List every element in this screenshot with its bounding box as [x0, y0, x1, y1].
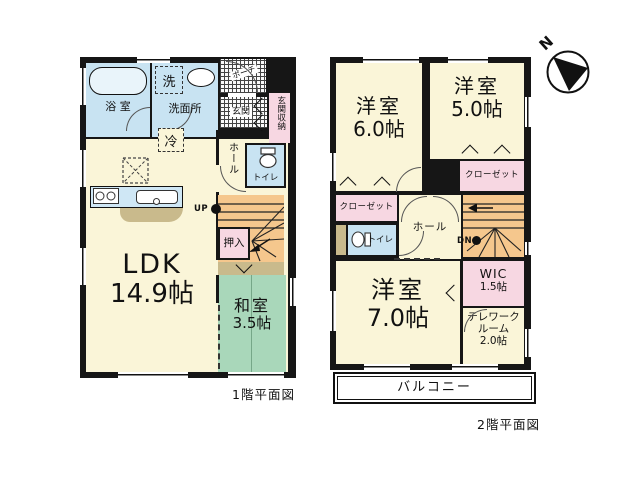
yoshitsu5-size: 5.0帖	[451, 98, 503, 121]
window	[118, 372, 188, 378]
telework-size: 2.0帖	[480, 335, 507, 347]
wic-name: WIC	[480, 267, 508, 281]
room-wic: WIC 1.5帖	[463, 261, 524, 306]
door-swing-icon	[462, 145, 479, 162]
window	[363, 57, 419, 63]
closet-floor-strip	[218, 262, 284, 275]
toilet2-label: トイレ	[367, 236, 393, 246]
washitsu-name: 和室	[234, 297, 270, 315]
yoshitsu7-size: 7.0帖	[367, 305, 429, 333]
closet-right-label: クローゼット	[465, 171, 519, 181]
room-yoshitsu7: 洋室 7.0帖	[336, 261, 460, 364]
wall	[86, 137, 218, 139]
room-hall2: ホール	[399, 195, 461, 259]
window	[80, 248, 86, 285]
door-arc	[396, 167, 421, 192]
window	[330, 291, 336, 331]
floor2-caption: 2階平面図	[466, 414, 540, 433]
washitsu-label: 和室 3.5帖	[218, 297, 286, 333]
toilet1-label: トイレ	[247, 174, 284, 184]
fridge-icon: 冷	[158, 128, 184, 152]
window	[80, 150, 86, 187]
room-washroom: 洗 洗面所	[152, 63, 218, 137]
window	[137, 57, 170, 63]
window	[228, 372, 284, 378]
floor1-caption: 1階平面図	[225, 384, 295, 403]
room-telework: テレワーク ルーム 2.0帖	[463, 308, 524, 364]
room-bath: 浴 室	[86, 63, 150, 137]
table-icon	[122, 157, 149, 184]
yoshitsu5-name: 洋室	[454, 75, 500, 98]
washbasin-icon	[187, 68, 215, 87]
yoshitsu6-name: 洋室	[356, 95, 402, 118]
oshiire-label: 押入	[224, 237, 245, 249]
floorplan-canvas: 浴 室 洗 洗面所 ポーチ 玄関 玄関収納 ホール	[0, 0, 635, 480]
wall	[220, 128, 269, 130]
room-yoshitsu6: 洋室 6.0帖	[336, 63, 422, 191]
toilet-counter	[336, 225, 346, 255]
closet-left-label: クローゼット	[339, 203, 393, 213]
door-arc	[399, 231, 424, 256]
window	[290, 278, 296, 306]
genkan-label: 玄関	[230, 107, 252, 117]
yoshitsu7-name: 洋室	[371, 277, 425, 305]
washing-machine-icon: 洗	[155, 66, 183, 94]
stairs-up-dot	[211, 204, 221, 214]
door-swing-icon	[374, 177, 391, 194]
compass-icon: N	[532, 26, 606, 100]
window	[452, 364, 498, 370]
window	[448, 57, 488, 63]
room-toilet-2f: トイレ	[348, 225, 396, 255]
stairs-arrow	[249, 244, 260, 252]
bathtub-icon	[89, 67, 147, 95]
room-yoshitsu5: 洋室 5.0帖	[430, 63, 524, 159]
ldk-size: 14.9帖	[110, 280, 194, 310]
wall	[216, 130, 219, 165]
ldk-name: LDK	[122, 249, 182, 280]
window	[525, 242, 531, 255]
stairs-up-label: UP	[194, 204, 208, 214]
sliding-door-dashed	[394, 258, 440, 260]
compass-north-label: N	[536, 32, 557, 54]
floor1-building: 浴 室 洗 洗面所 ポーチ 玄関 玄関収納 ホール	[80, 57, 296, 378]
stairs-down-label: DN	[457, 236, 472, 246]
kitchen-counter	[90, 186, 183, 208]
stairs-2f	[463, 195, 524, 257]
balcony: バルコニー	[333, 372, 536, 404]
floor2-building: 洋室 6.0帖 洋室 5.0帖 クローゼット クローゼット	[330, 57, 531, 370]
door-swing-icon	[340, 177, 357, 194]
kitchen-counter-base	[120, 208, 183, 222]
yoshitsu5-label: 洋室 5.0帖	[430, 75, 524, 121]
window	[525, 97, 531, 127]
door-arc	[401, 196, 427, 222]
genkan-storage-label: 玄関収納	[275, 96, 285, 130]
room-bath-label: 浴 室	[86, 101, 150, 114]
yoshitsu7-label: 洋室 7.0帖	[336, 277, 460, 332]
wic-size: 1.5帖	[480, 281, 507, 293]
balcony-label: バルコニー	[397, 381, 472, 396]
ldk-label: LDK 14.9帖	[88, 249, 216, 310]
genkan-storage: 玄関収納	[269, 93, 290, 143]
closet-left: クローゼット	[336, 195, 397, 221]
room-toilet-1f: トイレ	[245, 143, 286, 188]
door-arc	[433, 196, 459, 222]
faucet-icon	[153, 198, 160, 205]
window	[364, 364, 410, 370]
window	[330, 153, 336, 181]
room-washitsu: 和室 3.5帖	[218, 275, 286, 372]
stairs-treads	[463, 195, 524, 257]
window	[80, 68, 86, 105]
stairs-arrow	[468, 204, 477, 213]
room-washroom-label: 洗面所	[152, 103, 218, 116]
washitsu-size: 3.5帖	[233, 315, 272, 332]
stairs-down-dot	[472, 236, 481, 245]
yoshitsu6-size: 6.0帖	[353, 118, 405, 141]
stove-icon	[93, 188, 119, 204]
yoshitsu6-label: 洋室 6.0帖	[336, 95, 422, 141]
toilet-icon	[256, 147, 280, 169]
door-swing-icon	[494, 145, 511, 162]
closet-right: クローゼット	[460, 161, 524, 191]
window	[525, 329, 531, 357]
room-oshiire: 押入	[218, 227, 250, 260]
wall	[216, 275, 219, 303]
